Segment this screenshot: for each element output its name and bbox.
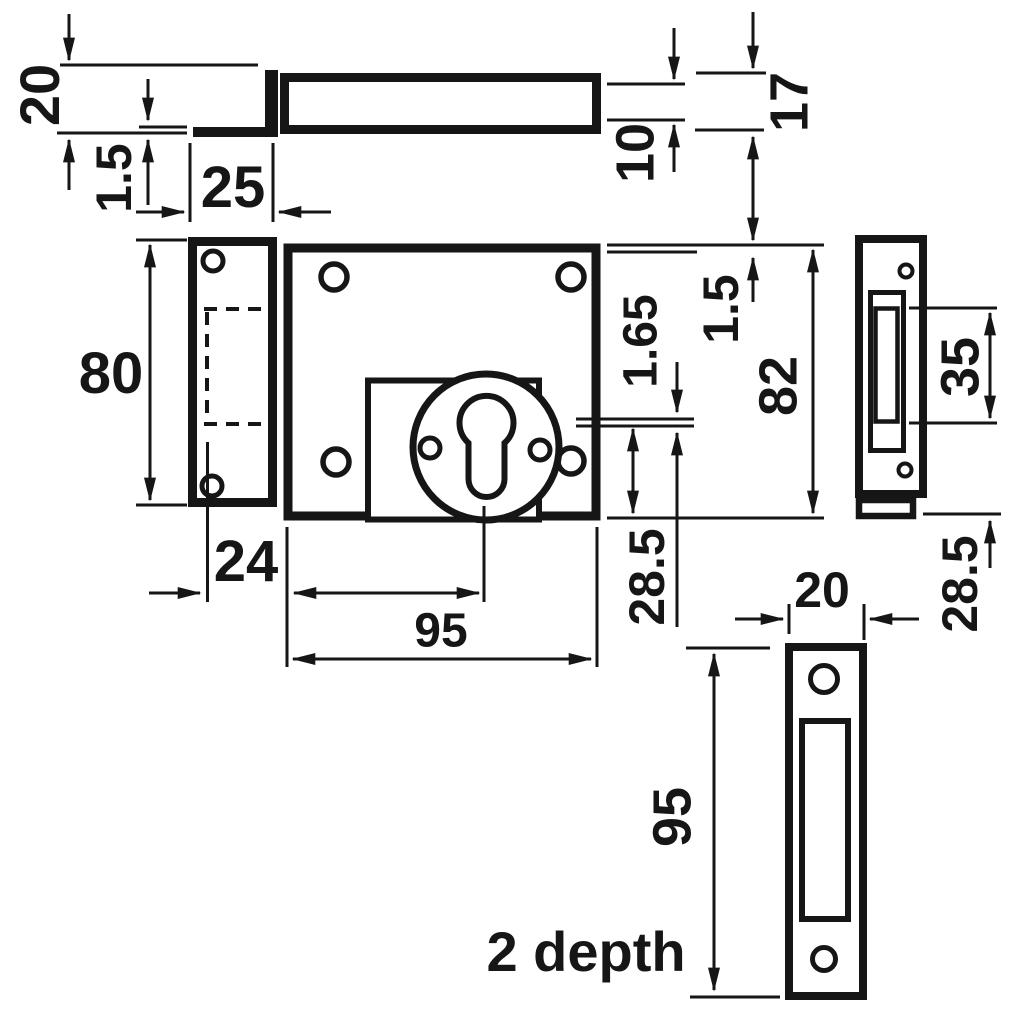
strike-plate-view	[686, 604, 919, 997]
label-faceplate-width: 20	[8, 64, 71, 126]
faceplate-front-view	[193, 242, 273, 503]
label-top-clearance: 1.5	[693, 274, 749, 344]
side-bolt-thrown	[859, 500, 913, 516]
strike-bolt-slot	[802, 721, 848, 919]
case-screw-hole-bottom-left	[323, 449, 349, 475]
case-screw-hole-top-left	[321, 264, 347, 290]
label-overall-depth: 17	[759, 72, 819, 132]
faceplate-screw-hole-top	[203, 251, 223, 271]
label-bolt-line-offset: 28.5	[619, 528, 675, 625]
technical-drawing-canvas: 20 1.5 25 10 17 80 1.65 1.5 82 28.5 24 9…	[0, 0, 1024, 1024]
euro-keyhole	[459, 396, 513, 497]
label-side-bolt-offset: 28.5	[932, 535, 988, 632]
label-case-height: 82	[748, 356, 808, 416]
side-screw-hole-top	[900, 265, 913, 278]
label-faceplate-height: 80	[79, 341, 144, 406]
label-strike-width: 20	[794, 562, 850, 618]
label-strike-height: 95	[642, 787, 702, 847]
case-screw-hole-top-right	[558, 264, 584, 290]
escutcheon-hole-right	[530, 440, 550, 460]
faceplate-screw-hole-bottom	[202, 476, 222, 496]
label-keyway-offset: 24	[214, 529, 279, 594]
label-faceplate-thickness: 1.5	[86, 143, 142, 213]
strike-screw-hole-bottom	[813, 948, 836, 971]
label-slot-height: 35	[930, 337, 990, 397]
side-bolt-face	[876, 309, 898, 422]
side-view	[859, 239, 1001, 568]
lock-dimension-drawing: 20 1.5 25 10 17 80 1.65 1.5 82 28.5 24 9…	[0, 0, 1024, 1024]
faceplate-top-view	[193, 70, 278, 137]
escutcheon-hole-left	[420, 438, 440, 458]
label-case-depth-inner: 10	[605, 123, 665, 183]
side-screw-hole-bottom	[899, 464, 912, 477]
label-strike-depth-note: 2 depth	[486, 920, 685, 983]
label-faceplate-offset: 25	[201, 155, 266, 220]
label-spindle-plate-thickness: 1.65	[614, 294, 667, 387]
label-case-width: 95	[414, 604, 467, 657]
strike-screw-hole-top	[811, 666, 838, 693]
case-top-view	[285, 78, 597, 130]
